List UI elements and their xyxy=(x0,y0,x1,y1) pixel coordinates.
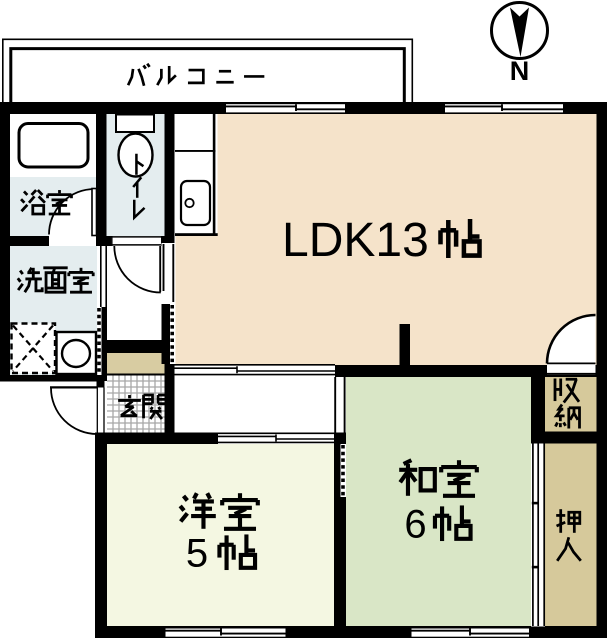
svg-text:N: N xyxy=(510,56,530,86)
svg-text:6: 6 xyxy=(404,503,426,547)
svg-text:5: 5 xyxy=(186,532,208,576)
svg-text:LDK13: LDK13 xyxy=(282,214,429,267)
